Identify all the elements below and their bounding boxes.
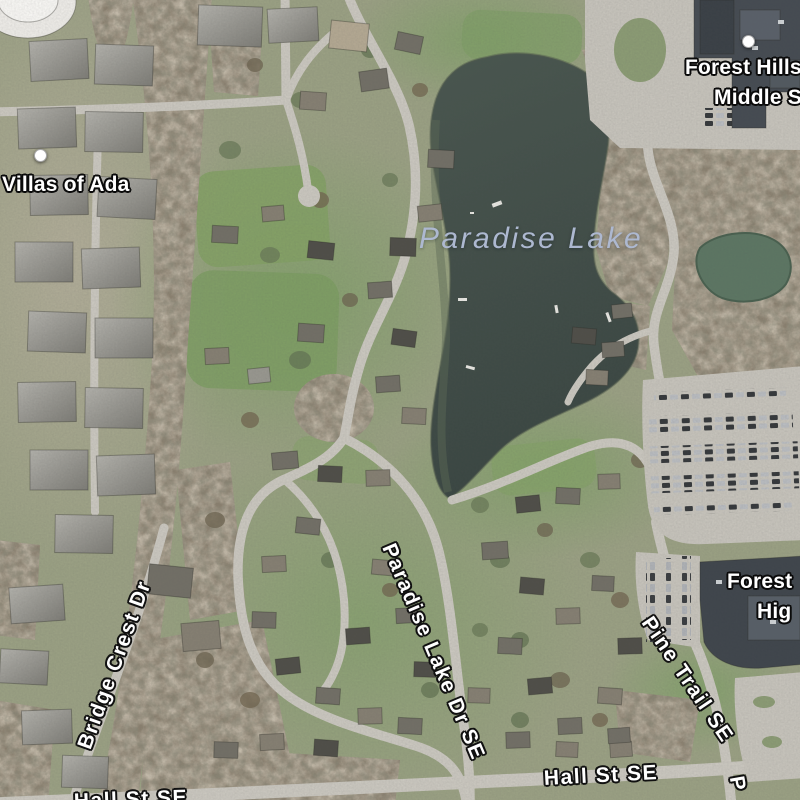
label-villas-of-ada[interactable]: Villas of Ada	[2, 170, 129, 200]
map-viewport[interactable]: Villas of Ada Forest Hills Middle S Fore…	[0, 0, 800, 800]
label-line: Forest	[727, 567, 792, 597]
label-paradise-lake[interactable]: Paradise Lake	[419, 222, 643, 256]
label-forest-hills-high-school[interactable]: Forest Hig	[727, 567, 792, 627]
label-line: Forest Hills	[685, 53, 800, 83]
label-line: Middle S	[714, 83, 800, 113]
poi-marker-villas-of-ada[interactable]	[34, 149, 47, 162]
label-forest-hills-middle-school[interactable]: Forest Hills Middle S	[685, 53, 800, 113]
label-line: Hig	[757, 597, 792, 627]
poi-marker-forest-hills-middle[interactable]	[742, 35, 755, 48]
